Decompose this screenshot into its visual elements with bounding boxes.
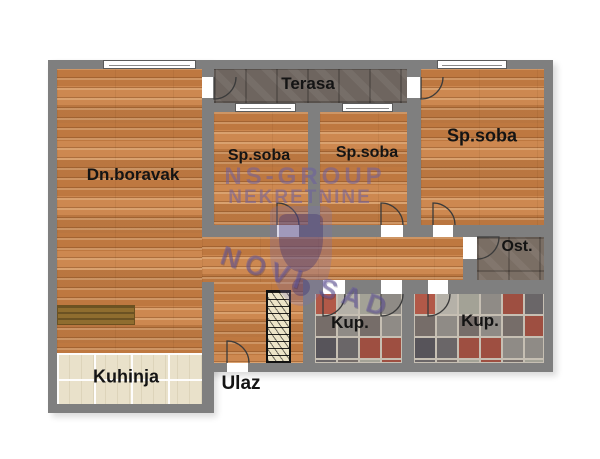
wall-living-right-lower bbox=[202, 282, 214, 363]
bath-tile bbox=[525, 294, 543, 314]
bath-tile bbox=[338, 338, 358, 358]
window-bedroom-right bbox=[437, 60, 507, 69]
window-living-room bbox=[103, 60, 196, 69]
door-gap-bathroom-middle-right bbox=[381, 280, 402, 294]
bath-tile bbox=[437, 316, 457, 336]
window-bedroom-middle bbox=[342, 103, 393, 112]
floor-plan: Dn.boravak Terasa Sp.soba Sp.soba Sp.sob… bbox=[0, 0, 600, 459]
bath-tile bbox=[338, 360, 358, 362]
wall-kitchen-bottom bbox=[48, 404, 213, 413]
wall-exterior-bottom bbox=[248, 363, 553, 372]
bath-tile bbox=[525, 338, 543, 358]
bath-tile bbox=[316, 360, 336, 362]
door-gap-bedroom-left bbox=[277, 225, 299, 237]
door-gap-bedroom-middle bbox=[381, 225, 403, 237]
bath-tile bbox=[481, 360, 501, 362]
wall-living-right-above-terrace-door bbox=[202, 68, 214, 77]
bath-tile bbox=[437, 294, 457, 314]
wall-bedroom-divider bbox=[308, 103, 320, 234]
bath-tile bbox=[382, 338, 401, 358]
door-gap-storage bbox=[463, 237, 477, 259]
label-kitchen: Kuhinja bbox=[93, 367, 159, 388]
wall-bedrooms-bottom-seg3 bbox=[403, 225, 433, 237]
door-gap-bedroom-right bbox=[433, 225, 453, 237]
bath-tile bbox=[360, 338, 380, 358]
wall-terrace-bedright-top bbox=[407, 68, 421, 77]
bath-tile bbox=[503, 294, 523, 314]
wall-bathmid-left bbox=[303, 280, 315, 363]
bath-tile bbox=[415, 294, 435, 314]
label-storage: Ost. bbox=[501, 238, 532, 256]
bath-tile bbox=[415, 360, 435, 362]
wall-kitchen-right-lower bbox=[202, 363, 214, 413]
kitchen-counter bbox=[57, 305, 135, 325]
label-entrance: Ulaz bbox=[221, 373, 260, 395]
floor-bedroom-left bbox=[214, 112, 308, 225]
bath-tile bbox=[382, 360, 401, 362]
bath-tile bbox=[415, 316, 435, 336]
floor-bedroom-right bbox=[421, 68, 544, 225]
bath-tile bbox=[503, 338, 523, 358]
bath-tile bbox=[525, 316, 543, 336]
bath-tile bbox=[338, 294, 358, 314]
wall-exterior-left bbox=[48, 60, 57, 413]
label-bedroom-right: Sp.soba bbox=[447, 126, 517, 147]
bath-tile bbox=[382, 316, 401, 336]
wall-bath-divider bbox=[402, 280, 414, 363]
floor-bedroom-middle bbox=[320, 112, 407, 225]
wall-hall-bottom-seg3 bbox=[414, 280, 428, 294]
bath-tile bbox=[459, 360, 479, 362]
entry-wardrobe bbox=[266, 290, 291, 363]
wall-bedrooms-bottom-seg4 bbox=[453, 225, 544, 237]
bath-tile bbox=[382, 294, 401, 314]
label-bedroom-left: Sp.soba bbox=[228, 147, 290, 165]
label-bedroom-middle: Sp.soba bbox=[336, 144, 398, 162]
bath-tile bbox=[360, 360, 380, 362]
floor-hallway bbox=[202, 237, 463, 282]
label-bathroom-middle: Kup. bbox=[331, 313, 369, 333]
bath-tile bbox=[437, 338, 457, 358]
bath-tile bbox=[525, 360, 543, 362]
wall-hall-bottom-seg1 bbox=[315, 280, 323, 294]
bath-tile bbox=[415, 338, 435, 358]
door-gap-entrance bbox=[227, 363, 248, 372]
door-gap-bathroom-right bbox=[428, 280, 448, 294]
label-terrace: Terasa bbox=[281, 74, 335, 94]
wall-bedrooms-bottom-seg2 bbox=[299, 225, 381, 237]
bath-tile bbox=[316, 294, 336, 314]
bath-tile bbox=[503, 316, 523, 336]
wall-storage-left bbox=[463, 259, 477, 280]
wall-bedmid-bedright bbox=[407, 98, 421, 234]
bath-tile bbox=[503, 360, 523, 362]
window-bedroom-left bbox=[235, 103, 296, 112]
bath-tile bbox=[360, 294, 380, 314]
bath-tile bbox=[316, 338, 336, 358]
label-living-room: Dn.boravak bbox=[87, 165, 180, 185]
bath-tile bbox=[459, 338, 479, 358]
door-gap-terrace-bedright bbox=[407, 77, 421, 98]
bath-tile bbox=[437, 360, 457, 362]
wall-hall-bottom-seg2 bbox=[345, 280, 381, 294]
bath-tile bbox=[481, 338, 501, 358]
door-gap-living-terrace bbox=[202, 77, 214, 98]
label-bathroom-right: Kup. bbox=[461, 311, 499, 331]
wall-hall-bottom-seg4 bbox=[448, 280, 544, 294]
wall-living-right-mid bbox=[202, 98, 214, 235]
wall-exterior-right bbox=[544, 60, 553, 372]
door-gap-bathroom-middle-left bbox=[323, 280, 345, 294]
wall-bedrooms-bottom-seg1 bbox=[202, 225, 277, 237]
